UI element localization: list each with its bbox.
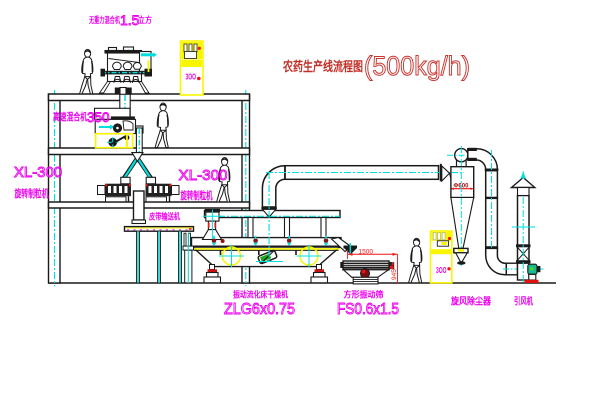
svg-text:皮带输送机: 皮带输送机 [148,212,180,222]
svg-text:旋转制粒机: 旋转制粒机 [180,189,213,202]
svg-text:945: 945 [391,269,398,280]
svg-text:1.5: 1.5 [120,12,140,28]
svg-text:振动流化床干燥机: 振动流化床干燥机 [233,290,288,300]
svg-text:XL-300: XL-300 [179,167,228,184]
svg-text:旋转制粒机: 旋转制粒机 [14,187,49,200]
svg-text:立方: 立方 [138,15,152,25]
svg-text:350: 350 [87,110,110,125]
svg-text:引风机: 引风机 [514,296,533,308]
svg-text:方形振动筛: 方形振动筛 [344,290,384,300]
svg-text:无重力混合机: 无重力混合机 [88,15,120,25]
svg-text:XL-300: XL-300 [14,164,62,181]
svg-text:农药生产线流程图: 农药生产线流程图 [282,59,363,74]
svg-text:3OO: 3OO [436,266,447,275]
svg-text:高速混合机: 高速混合机 [53,111,87,124]
svg-text:(500kg/h): (500kg/h) [364,51,470,81]
svg-text:旋风除尘器: 旋风除尘器 [450,296,491,308]
svg-text:1500: 1500 [359,249,374,256]
svg-text:3OO: 3OO [186,73,197,82]
svg-text:FS0.6x1.5: FS0.6x1.5 [337,301,399,318]
svg-text:ZLG6x0.75: ZLG6x0.75 [224,301,295,318]
